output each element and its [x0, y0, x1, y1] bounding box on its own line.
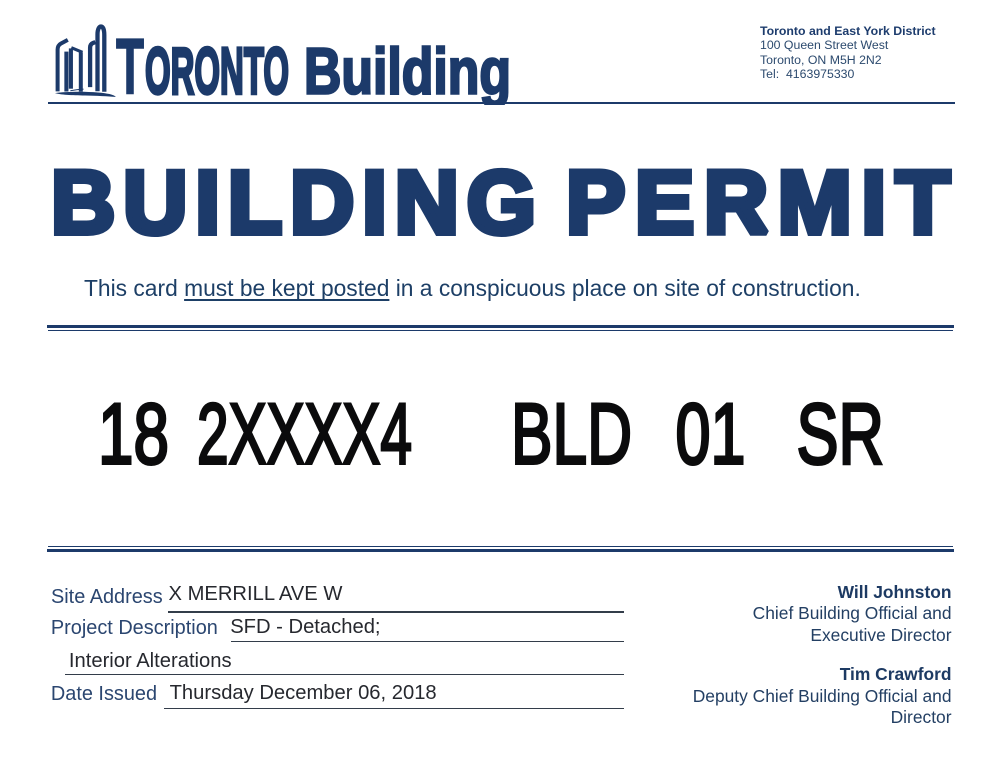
svg-text:SR: SR: [797, 390, 885, 480]
svg-text:T: T: [116, 30, 144, 105]
svg-text:Building: Building: [304, 36, 511, 106]
svg-text:PERMIT: PERMIT: [566, 152, 950, 252]
svg-text:2XXXX4: 2XXXX4: [197, 390, 412, 480]
svg-text:01: 01: [676, 390, 746, 480]
svg-text:ORONTO: ORONTO: [145, 35, 289, 106]
svg-text:BUILDING: BUILDING: [51, 152, 536, 252]
svg-text:18: 18: [98, 390, 169, 480]
svg-text:BLD: BLD: [511, 390, 632, 480]
